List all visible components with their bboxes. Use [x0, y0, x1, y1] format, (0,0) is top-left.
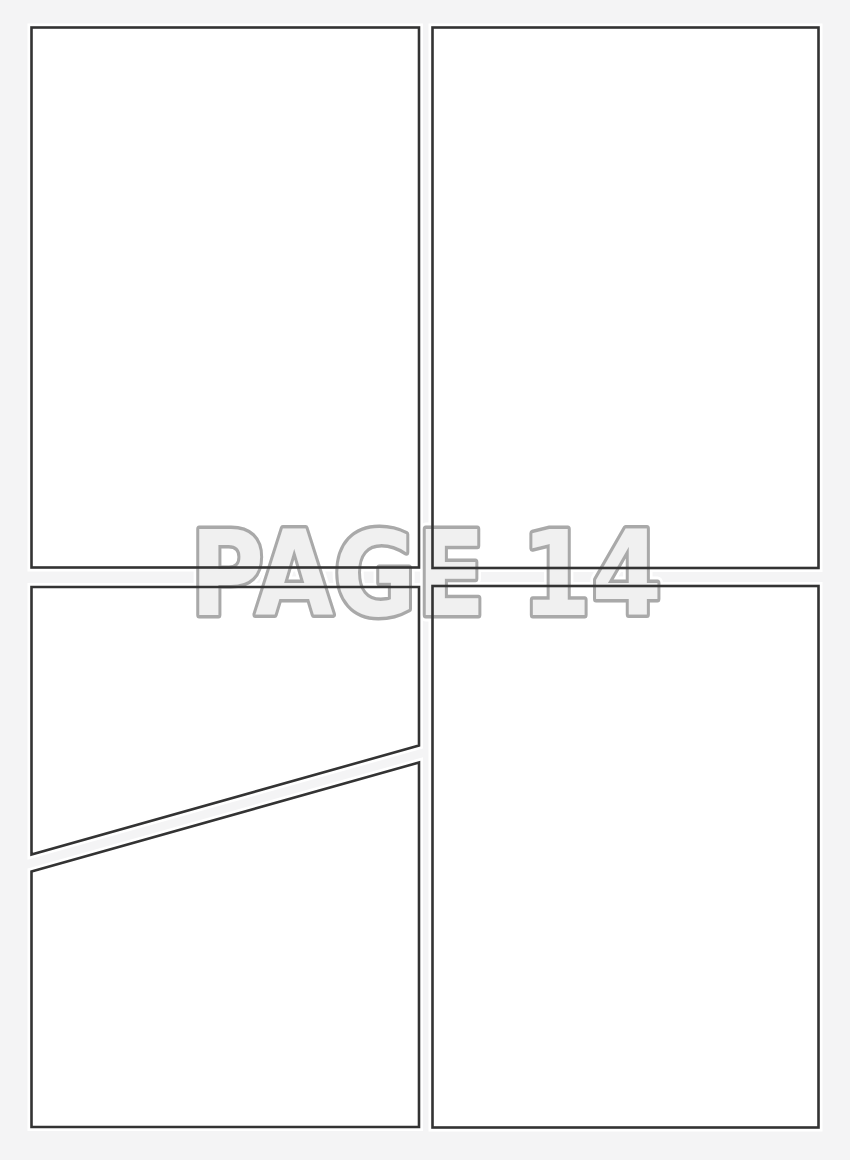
- panel-bottom-right: [433, 586, 819, 1128]
- page-number-watermark-text: PAGE 14: [190, 506, 662, 643]
- panel-top-left: [32, 28, 420, 568]
- panel-top-right: [433, 28, 819, 569]
- page-number-watermark: PAGE 14 PAGE 14: [190, 506, 662, 643]
- comic-page-template: PAGE 14 PAGE 14: [0, 0, 850, 1160]
